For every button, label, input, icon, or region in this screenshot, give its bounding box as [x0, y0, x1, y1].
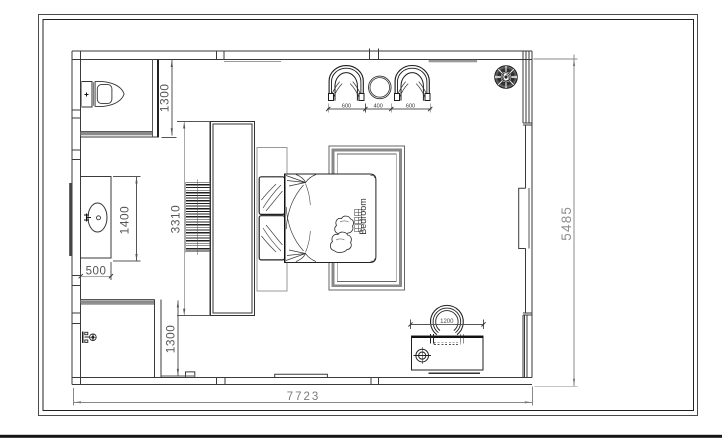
svg-text:7723: 7723 — [287, 391, 321, 403]
svg-text:5485: 5485 — [559, 206, 574, 241]
svg-text:1400: 1400 — [118, 206, 132, 235]
svg-text:1200: 1200 — [440, 319, 454, 325]
svg-text:600: 600 — [342, 104, 351, 110]
svg-text:1300: 1300 — [158, 83, 172, 112]
svg-text:600: 600 — [406, 104, 415, 110]
svg-text:400: 400 — [374, 104, 383, 110]
svg-text:500: 500 — [86, 265, 107, 277]
svg-text:3310: 3310 — [169, 205, 183, 234]
svg-text:Bedroom: Bedroom — [358, 198, 368, 235]
svg-text:1300: 1300 — [164, 325, 178, 354]
